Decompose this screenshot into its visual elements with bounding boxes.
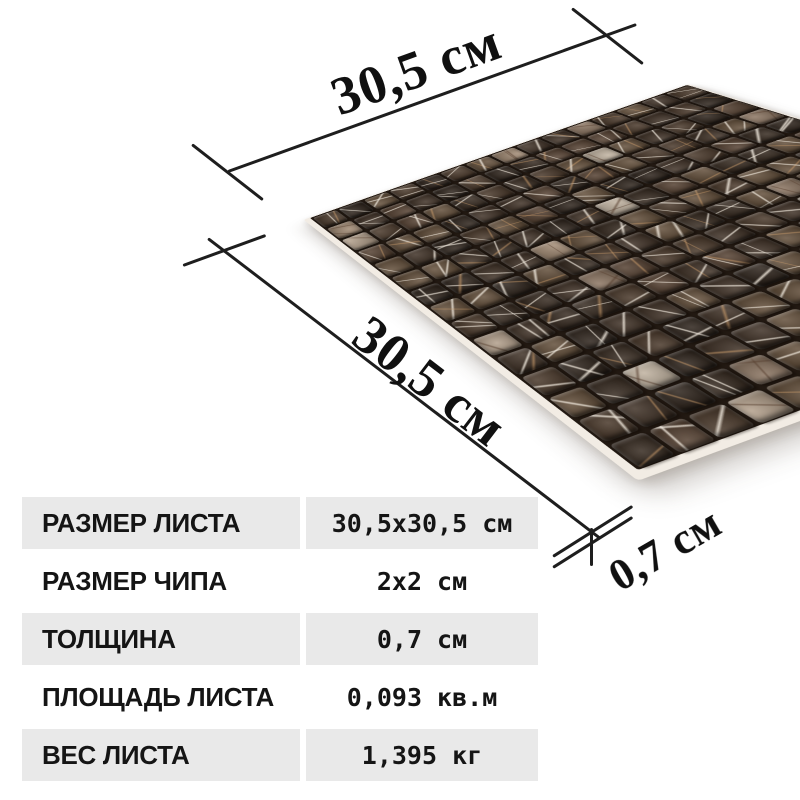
spec-row: РАЗМЕР ЧИПА2x2 см [22, 555, 538, 607]
spec-value: 0,093 кв.м [306, 671, 538, 723]
spec-label: ТОЛЩИНА [22, 613, 300, 665]
spec-row: ТОЛЩИНА0,7 см [22, 613, 538, 665]
dimension-tick-top-left [191, 143, 264, 201]
spec-row: ВЕС ЛИСТА1,395 кг [22, 729, 538, 781]
spec-value: 1,395 кг [306, 729, 538, 781]
spec-value: 0,7 см [306, 613, 538, 665]
spec-label: ПЛОЩАДЬ ЛИСТА [22, 671, 300, 723]
spec-label: РАЗМЕР ЧИПА [22, 555, 300, 607]
spec-row: ПЛОЩАДЬ ЛИСТА0,093 кв.м [22, 671, 538, 723]
dimension-label-top-width: 30,5 см [323, 10, 509, 128]
spec-label: РАЗМЕР ЛИСТА [22, 497, 300, 549]
spec-value: 2x2 см [306, 555, 538, 607]
product-dimension-card: 30,5 см 30,5 см 0,7 см РАЗМЕР ЛИСТА30,5x… [0, 0, 800, 800]
mosaic-sheet-photo [310, 85, 800, 470]
spec-value: 30,5x30,5 см [306, 497, 538, 549]
dimension-tick-left-top [182, 234, 266, 267]
spec-row: РАЗМЕР ЛИСТА30,5x30,5 см [22, 497, 538, 549]
dimension-tick-top-right [571, 7, 644, 65]
spec-label: ВЕС ЛИСТА [22, 729, 300, 781]
spec-table: РАЗМЕР ЛИСТА30,5x30,5 смРАЗМЕР ЧИПА2x2 с… [22, 497, 538, 787]
